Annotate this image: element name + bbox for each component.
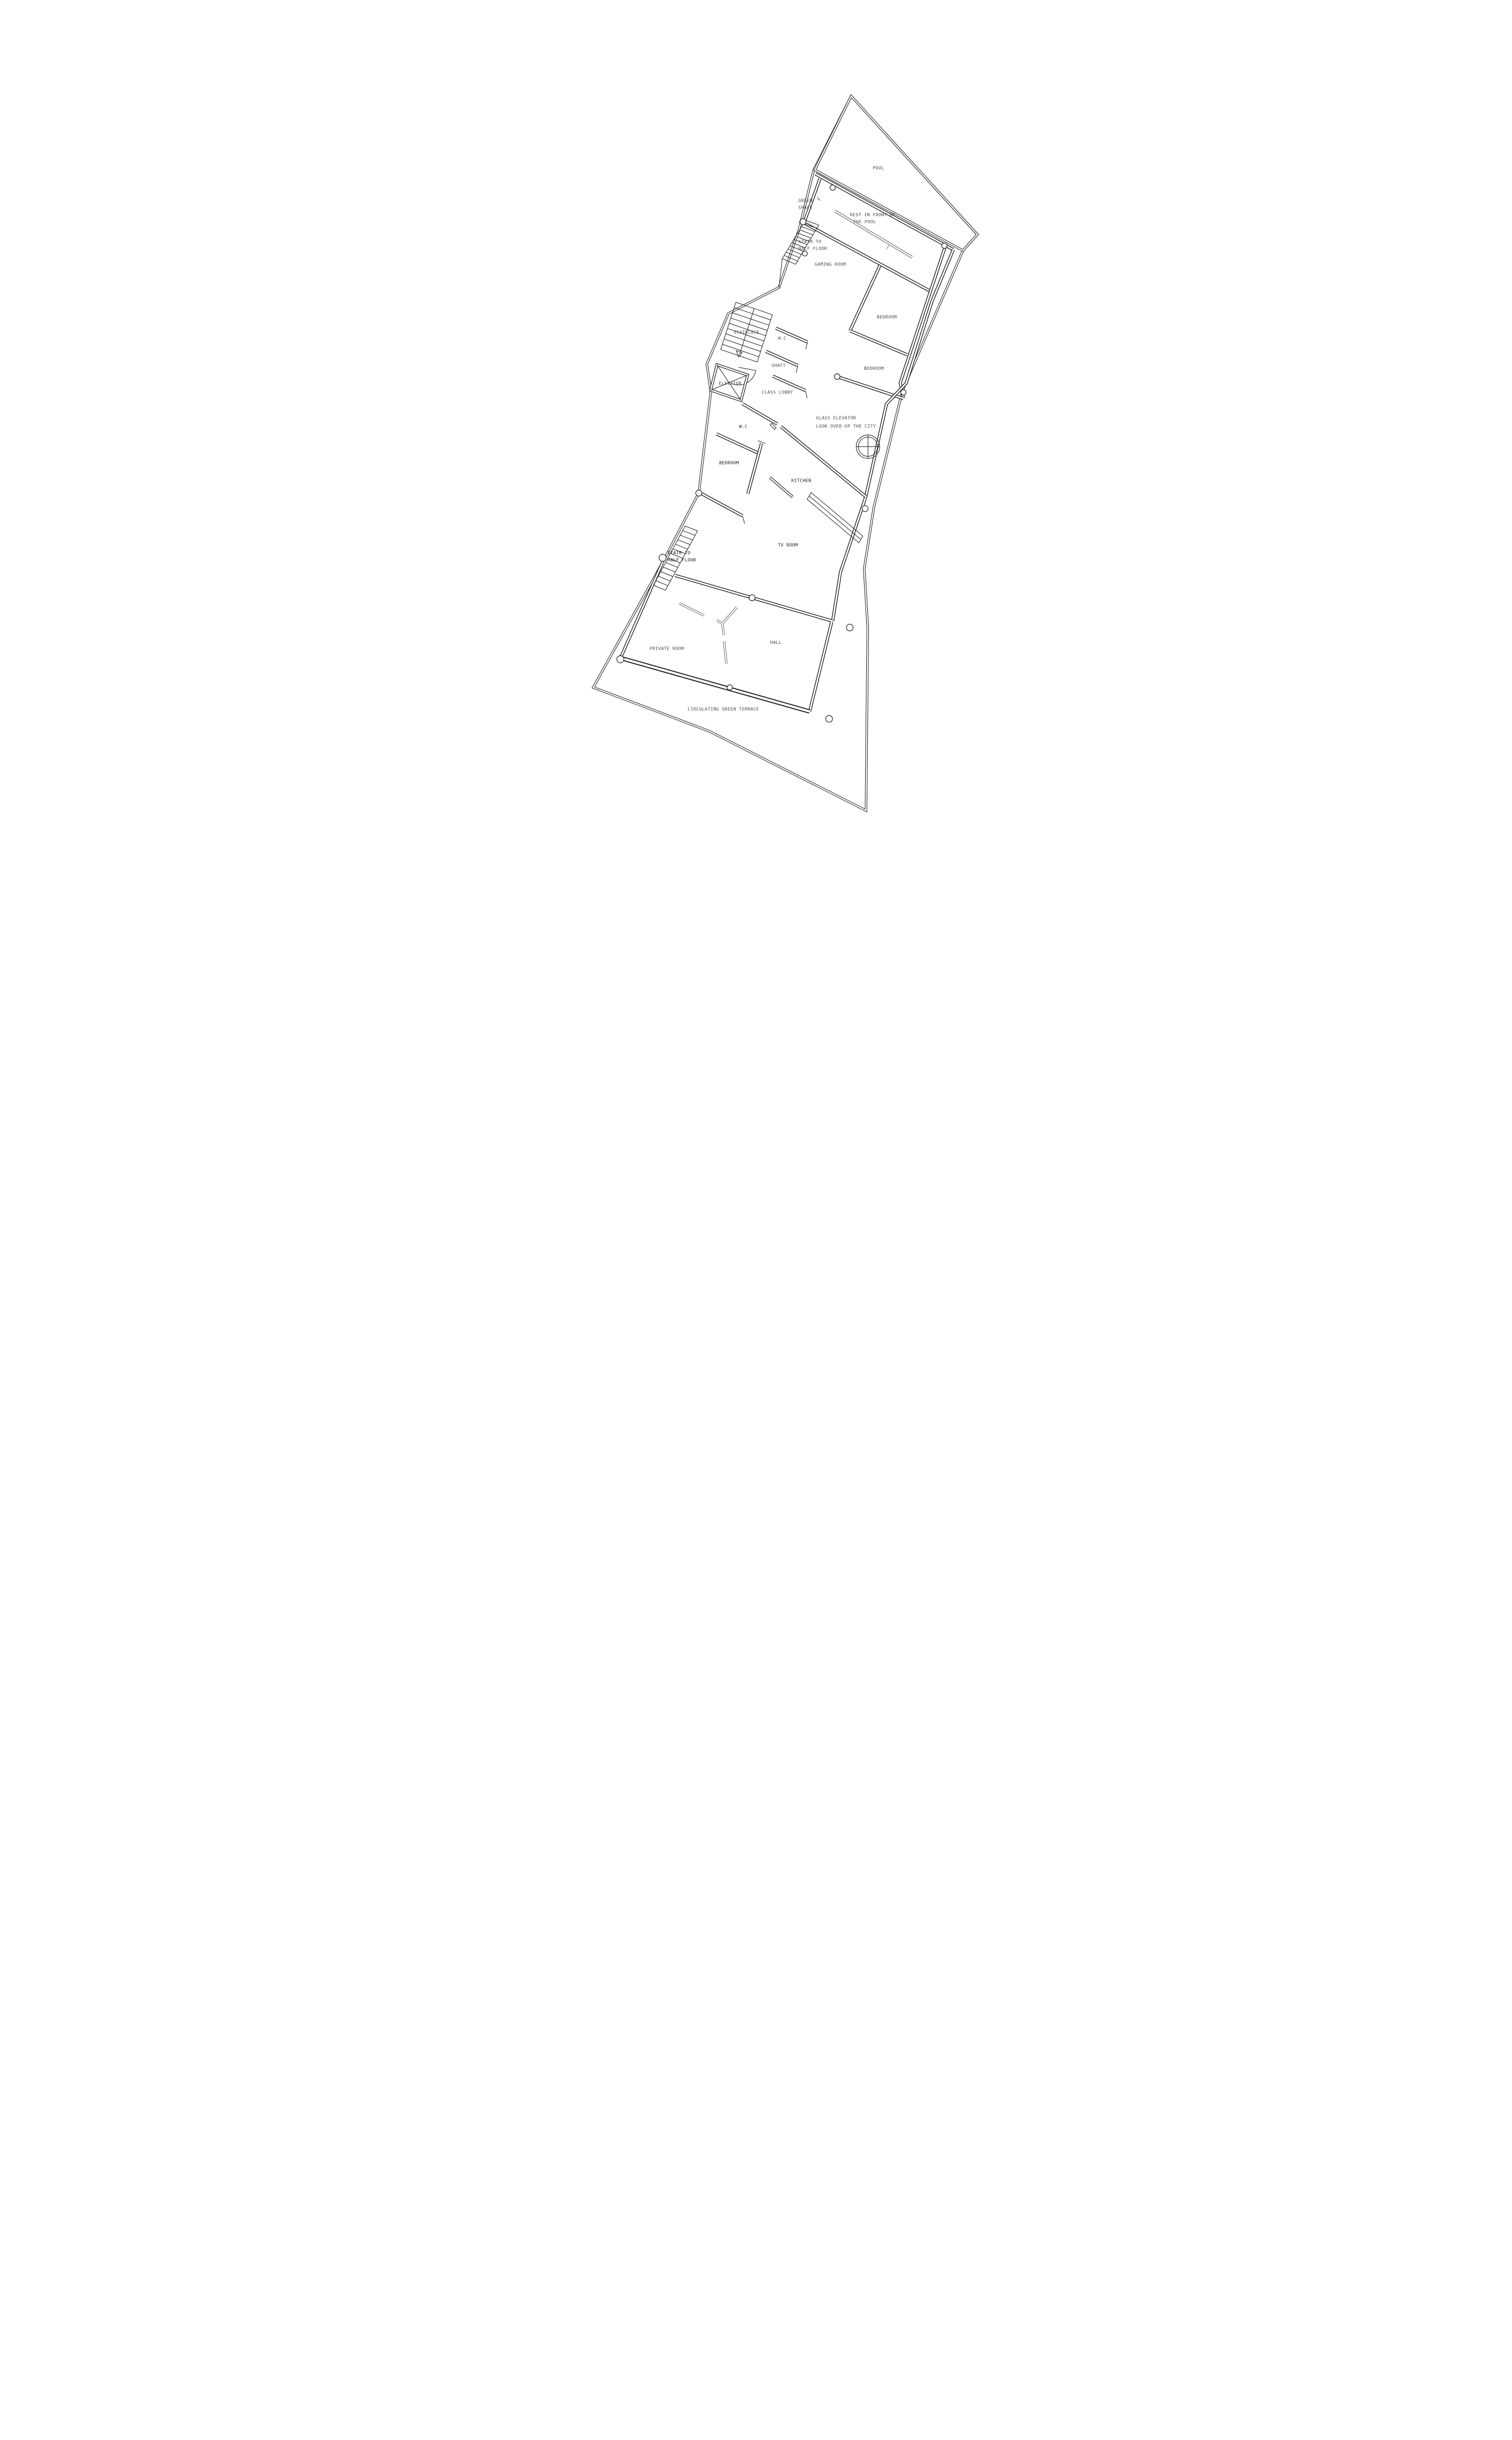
floor-plan-drawing: POOL GREEN SPACE REST IN FRONT OF THE PO… — [504, 0, 1008, 813]
label-pool: POOL — [873, 165, 884, 171]
label-bedroom-lower: BEDROOM — [719, 460, 739, 465]
label-class-lobby: CLASS LOBBY — [762, 390, 793, 395]
label-stair-bottom-2: HALF FLOOR — [668, 557, 696, 563]
label-stair-bottom-1: STAIR TO — [668, 550, 691, 556]
label-stair-top-2: HALF FLOOR — [799, 246, 827, 251]
wall-inner-right — [833, 249, 953, 621]
column-marker — [830, 185, 835, 191]
column-marker — [803, 251, 807, 256]
column-marker — [826, 716, 833, 723]
column-marker — [800, 218, 806, 224]
label-private-room: PRIVATE ROOM — [650, 645, 684, 651]
label-shaft: SHAFT — [772, 363, 786, 368]
label-bedroom-upper: BEDROOM — [877, 314, 897, 320]
label-staircase: STAIRCASE — [734, 330, 759, 335]
wall-bedroom-lower-bottom-cap — [743, 516, 745, 524]
label-glass-elevator-1: GLASS ELEVATOR — [816, 415, 856, 421]
column-marker — [942, 243, 947, 248]
label-bedroom-mid: BEDROOM — [864, 366, 884, 371]
column-marker — [749, 595, 755, 601]
column-marker — [696, 490, 701, 496]
staircase-arrow — [736, 351, 742, 357]
wall-shaft-bottom-cap — [805, 391, 807, 398]
column-marker — [659, 554, 666, 561]
label-stair-top-1: STAIR TO — [799, 239, 822, 244]
column-marker — [834, 374, 840, 379]
door-tick-green-space — [818, 197, 820, 200]
label-glass-elevator-2: LOOK OVER-UP THE CITY — [816, 423, 876, 429]
label-rest-1: REST IN FRONT OF — [850, 212, 896, 217]
label-rest-2: THE POOL — [853, 219, 876, 224]
label-terrace: CIRCULATING GREEN TERRACE — [688, 706, 759, 712]
column-marker — [846, 624, 853, 631]
label-hall: HALL — [770, 640, 782, 645]
floor-plan-page: POOL GREEN SPACE REST IN FRONT OF THE PO… — [504, 0, 1008, 813]
label-gaming-room: GAMING ROOM — [815, 261, 846, 267]
wall-bedroom-lower-right-cap — [758, 441, 766, 444]
label-wc-upper: W.C — [778, 336, 786, 341]
label-tv-room: TV ROOM — [778, 542, 798, 548]
label-green-space-2: SPACE — [798, 204, 813, 210]
column-marker — [727, 685, 732, 690]
column-marker — [901, 390, 906, 395]
label-green-space-1: GREEN — [798, 198, 813, 203]
label-elevator: ELEVATOR — [719, 381, 742, 386]
label-kitchen: KITCHEN — [791, 478, 811, 483]
column-marker — [617, 656, 624, 663]
label-wc-lower: W.C — [739, 424, 747, 429]
bench-tick — [887, 245, 889, 249]
column-marker — [862, 506, 868, 512]
